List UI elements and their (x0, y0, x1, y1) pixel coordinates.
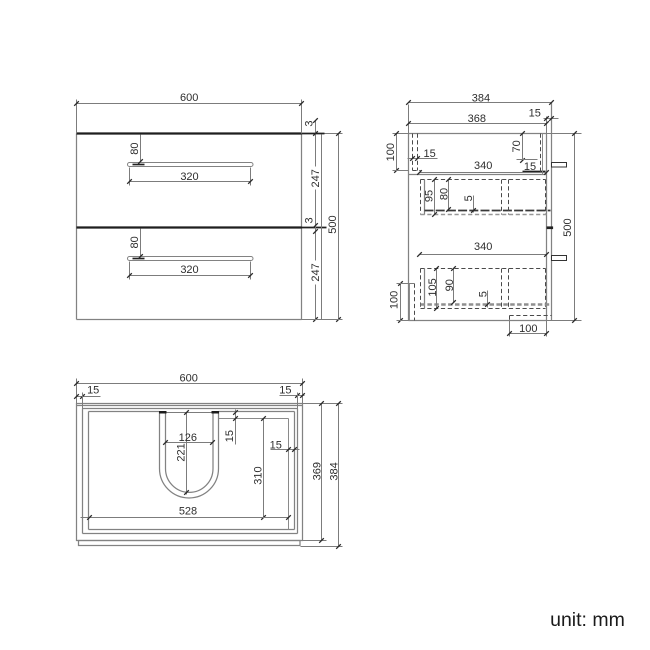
svg-text:80: 80 (129, 142, 141, 154)
svg-text:100: 100 (389, 291, 401, 309)
svg-text:247: 247 (310, 263, 322, 281)
svg-text:80: 80 (129, 236, 141, 248)
svg-text:221: 221 (176, 443, 188, 461)
svg-text:600: 600 (180, 372, 198, 384)
svg-text:600: 600 (180, 92, 198, 104)
svg-text:500: 500 (327, 215, 339, 233)
svg-text:unit: mm: unit: mm (550, 609, 625, 631)
svg-text:384: 384 (329, 462, 341, 480)
svg-text:70: 70 (511, 140, 523, 152)
svg-text:247: 247 (310, 169, 322, 187)
svg-text:126: 126 (179, 432, 197, 444)
svg-text:15: 15 (279, 385, 291, 397)
svg-text:95: 95 (424, 190, 436, 202)
svg-text:90: 90 (444, 279, 456, 291)
svg-text:15: 15 (529, 108, 541, 120)
svg-text:528: 528 (179, 505, 197, 517)
svg-text:3: 3 (304, 217, 316, 223)
svg-text:368: 368 (468, 113, 486, 125)
svg-text:15: 15 (270, 439, 282, 451)
svg-text:100: 100 (385, 143, 397, 161)
svg-text:100: 100 (519, 323, 537, 335)
svg-text:384: 384 (472, 92, 490, 104)
svg-text:340: 340 (474, 160, 492, 172)
svg-text:15: 15 (423, 148, 435, 160)
svg-text:500: 500 (562, 218, 574, 236)
svg-text:369: 369 (312, 462, 324, 480)
svg-text:320: 320 (180, 264, 198, 276)
svg-text:3: 3 (304, 121, 316, 127)
svg-text:340: 340 (474, 241, 492, 253)
svg-text:15: 15 (87, 385, 99, 397)
svg-text:320: 320 (180, 171, 198, 183)
svg-text:105: 105 (427, 278, 439, 296)
svg-text:15: 15 (224, 430, 236, 442)
svg-text:310: 310 (253, 466, 265, 484)
svg-text:80: 80 (439, 188, 451, 200)
